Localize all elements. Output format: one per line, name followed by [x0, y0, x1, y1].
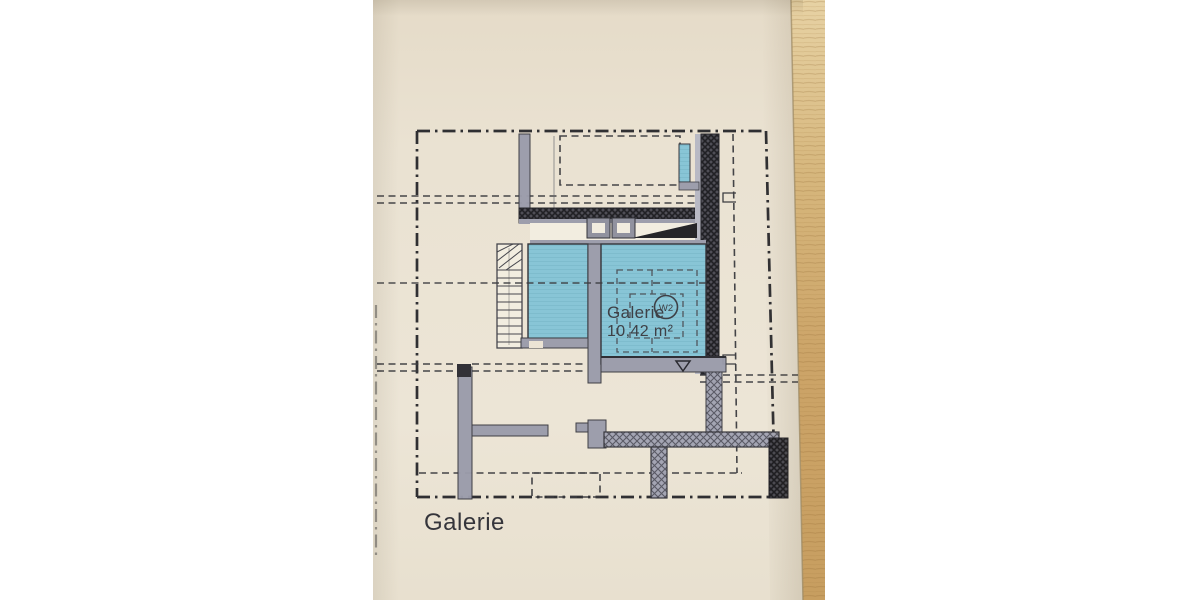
room-area-label: 10,42 m² — [607, 323, 674, 340]
left-gallery-room — [528, 244, 588, 342]
staircase — [497, 244, 522, 348]
unit-badge-label: W2 — [659, 303, 673, 314]
void-strip — [679, 144, 690, 182]
wall-left-lower — [458, 367, 472, 499]
wall-top-exterior — [519, 208, 701, 219]
plan-caption: Galerie — [424, 509, 505, 536]
wall-bottom-bar — [604, 432, 779, 447]
wall-middle — [588, 244, 601, 383]
wall-right-lower — [706, 372, 722, 432]
photo-of-floor-plan: Galerie 10,42 m² W2 Galerie — [0, 0, 1200, 600]
wall-left-branch — [472, 425, 548, 436]
wall-down-branch — [651, 447, 667, 498]
floor-plan-drawing: Galerie 10,42 m² W2 Galerie — [0, 0, 1200, 600]
